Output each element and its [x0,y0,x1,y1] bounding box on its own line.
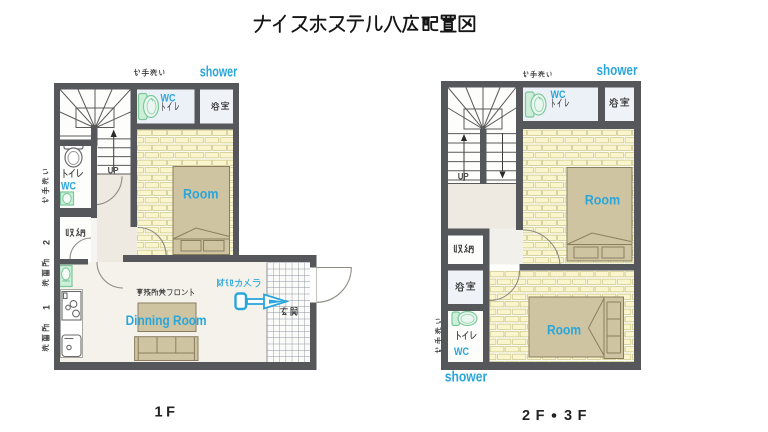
svg-text:1: 1 [42,305,52,310]
svg-text:Room: Room [547,323,581,338]
svg-text:WC: WC [454,346,469,358]
svg-text:2: 2 [522,408,530,424]
svg-text:Dinning Room: Dinning Room [126,313,207,328]
svg-text:Room: Room [585,193,621,208]
svg-text:1: 1 [154,405,162,421]
svg-text:Room: Room [183,187,219,202]
svg-text:2: 2 [42,240,52,245]
svg-text:WC: WC [61,181,76,193]
svg-text:3: 3 [564,408,572,424]
svg-text:F: F [166,405,175,421]
svg-text:shower: shower [597,62,638,79]
svg-text:shower: shower [200,64,238,81]
svg-text:UP: UP [458,172,470,183]
svg-text:shower: shower [445,369,488,386]
svg-text:F: F [536,408,545,424]
svg-text:F: F [578,408,587,424]
svg-text:UP: UP [108,166,120,177]
